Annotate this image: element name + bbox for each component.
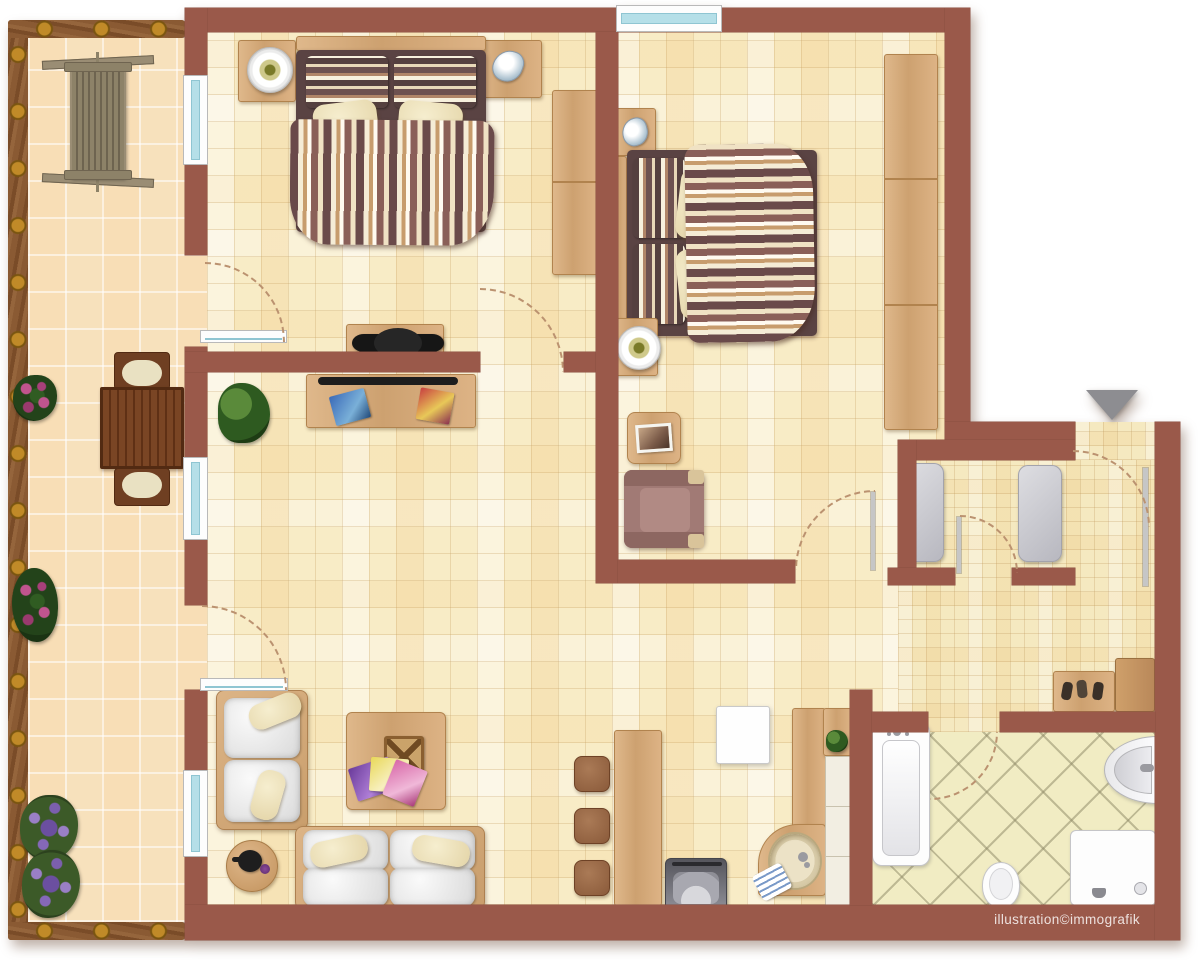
- wall-kitchen-bath-divider: [850, 690, 872, 905]
- bed1-wardrobe-divider: [553, 181, 597, 183]
- toilet-seat: [989, 868, 1013, 900]
- washbasin-faucet: [1140, 764, 1154, 772]
- teapot-spout: [232, 857, 242, 862]
- armchair-seat: [640, 488, 690, 532]
- dining-chair-top-cushion: [122, 360, 162, 386]
- photo-print: [635, 423, 673, 453]
- bar-counter: [614, 730, 662, 906]
- window-bedroom1: [183, 75, 208, 165]
- table-lamp-b2: [617, 326, 661, 370]
- desk-shelf-bar: [318, 377, 458, 385]
- door-arc-bathroom: [930, 732, 998, 800]
- wall-bed2-bottom: [618, 560, 795, 583]
- wall-right-upper: [945, 8, 970, 445]
- entrance-arrow-icon: [1086, 390, 1138, 420]
- armchair-cap-2: [688, 534, 704, 548]
- kitchen-counter-vertical: [792, 708, 826, 832]
- stove-handle: [672, 862, 722, 866]
- wall-top: [185, 8, 970, 32]
- window-living: [183, 457, 208, 540]
- bed2-duvet: [684, 143, 815, 343]
- sofa-three-seat-1: [303, 868, 388, 906]
- teapot: [238, 850, 262, 872]
- wall-bath-top-a: [872, 712, 928, 732]
- railing-top: [8, 20, 185, 38]
- bed1-cushion-left: [306, 56, 388, 108]
- shower-glyph: [1092, 888, 1106, 898]
- porch-swing-cap-bottom: [64, 170, 132, 180]
- bed1-duvet: [289, 119, 494, 246]
- bar-stool-1: [574, 756, 610, 792]
- floorplan: illustration©immografik: [0, 0, 1200, 960]
- door-arc-closet: [960, 515, 1018, 573]
- kitchen-plant: [826, 730, 848, 752]
- wall-closet-left: [898, 440, 916, 585]
- hall-cabinet: [1115, 658, 1155, 712]
- floorplan-canvas: illustration©immografik: [0, 0, 1200, 960]
- fridge: [716, 706, 770, 764]
- door-arc-bedroom1-balcony: [205, 262, 285, 342]
- wall-closet-bottom-a: [888, 568, 955, 585]
- wall-bath-top-b: [1000, 712, 1155, 732]
- bed2-wardrobe: [884, 54, 938, 430]
- wall-closet-bottom-b: [1012, 568, 1075, 585]
- table-flower: [260, 864, 270, 874]
- shoe-2: [1076, 680, 1088, 699]
- wall-left-b: [185, 165, 207, 255]
- dining-chair-bottom-cushion: [122, 472, 162, 498]
- wall-closet-top: [898, 440, 1075, 460]
- bed2-wardrobe-div2: [885, 304, 937, 306]
- bed1-headboard: [296, 36, 486, 51]
- wall-bedrooms-divider: [596, 32, 618, 583]
- door-arc-lounge-balcony: [202, 605, 287, 690]
- bar-stool-2: [574, 808, 610, 844]
- wall-left-e: [185, 690, 207, 770]
- watermark-text: illustration©immografik: [860, 912, 1140, 932]
- dining-table: [100, 387, 184, 469]
- bed2-wardrobe-div1: [885, 178, 937, 180]
- bar-stool-3: [574, 860, 610, 896]
- wall-left-d: [185, 540, 207, 605]
- railing-left: [8, 20, 28, 940]
- porch-swing-cap-top: [64, 62, 132, 72]
- railing-bottom: [8, 922, 185, 940]
- armchair-cap-1: [688, 470, 704, 484]
- sofa-three-seat-2: [390, 868, 475, 906]
- closet-mat-2: [1018, 465, 1062, 562]
- wall-outer-right: [1155, 422, 1180, 940]
- potted-plant: [218, 383, 270, 443]
- cabinet-line-2: [826, 856, 851, 857]
- door-arc-entrance: [1073, 450, 1150, 527]
- kitchen-white-cabinets: [825, 756, 852, 906]
- flower-pot-2: [12, 568, 58, 642]
- wall-bed1-bottom-a: [185, 352, 480, 372]
- wall-left-a: [185, 8, 207, 75]
- table-lamp-b1: [247, 47, 293, 93]
- door-arc-bedroom1-inner: [480, 288, 564, 372]
- porch-swing-bench: [70, 66, 126, 178]
- window-lounge: [183, 770, 208, 857]
- stove-door: [673, 872, 719, 904]
- window-bedroom2: [616, 5, 722, 32]
- cabinet-line-1: [826, 806, 851, 807]
- shower-tray: [1070, 830, 1156, 906]
- shower-drain: [1134, 882, 1147, 895]
- bathtub-inner: [882, 740, 920, 856]
- door-arc-bedroom2: [795, 490, 875, 570]
- sink-faucet: [798, 852, 808, 862]
- desk-magazine-red: [415, 387, 454, 424]
